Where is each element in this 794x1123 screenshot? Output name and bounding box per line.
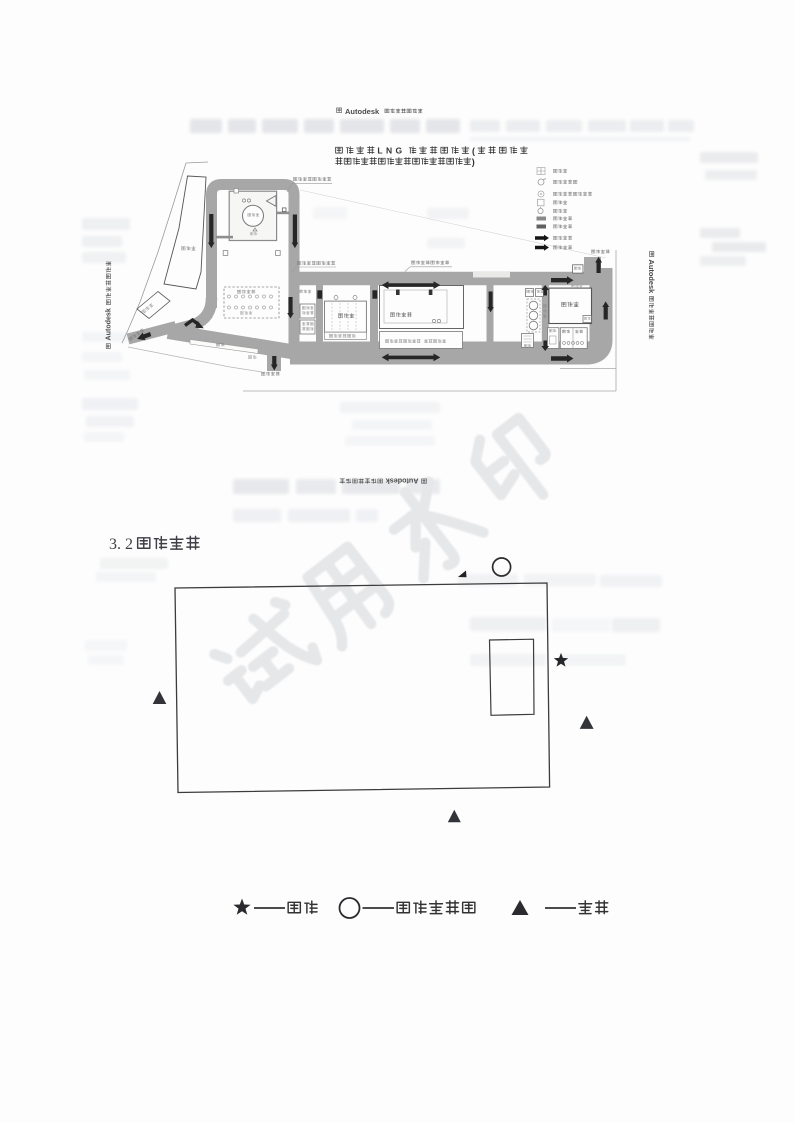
svg-text:LNG: LNG xyxy=(377,146,405,156)
svg-text:): ) xyxy=(472,157,475,167)
svg-text:3. 2: 3. 2 xyxy=(109,536,133,553)
svg-text:(: ( xyxy=(472,146,475,156)
svg-text:Autodesk: Autodesk xyxy=(105,308,113,340)
svg-text:Autodesk: Autodesk xyxy=(386,476,419,485)
svg-text:Autodesk: Autodesk xyxy=(345,107,380,116)
svg-text:Autodesk: Autodesk xyxy=(647,260,656,295)
